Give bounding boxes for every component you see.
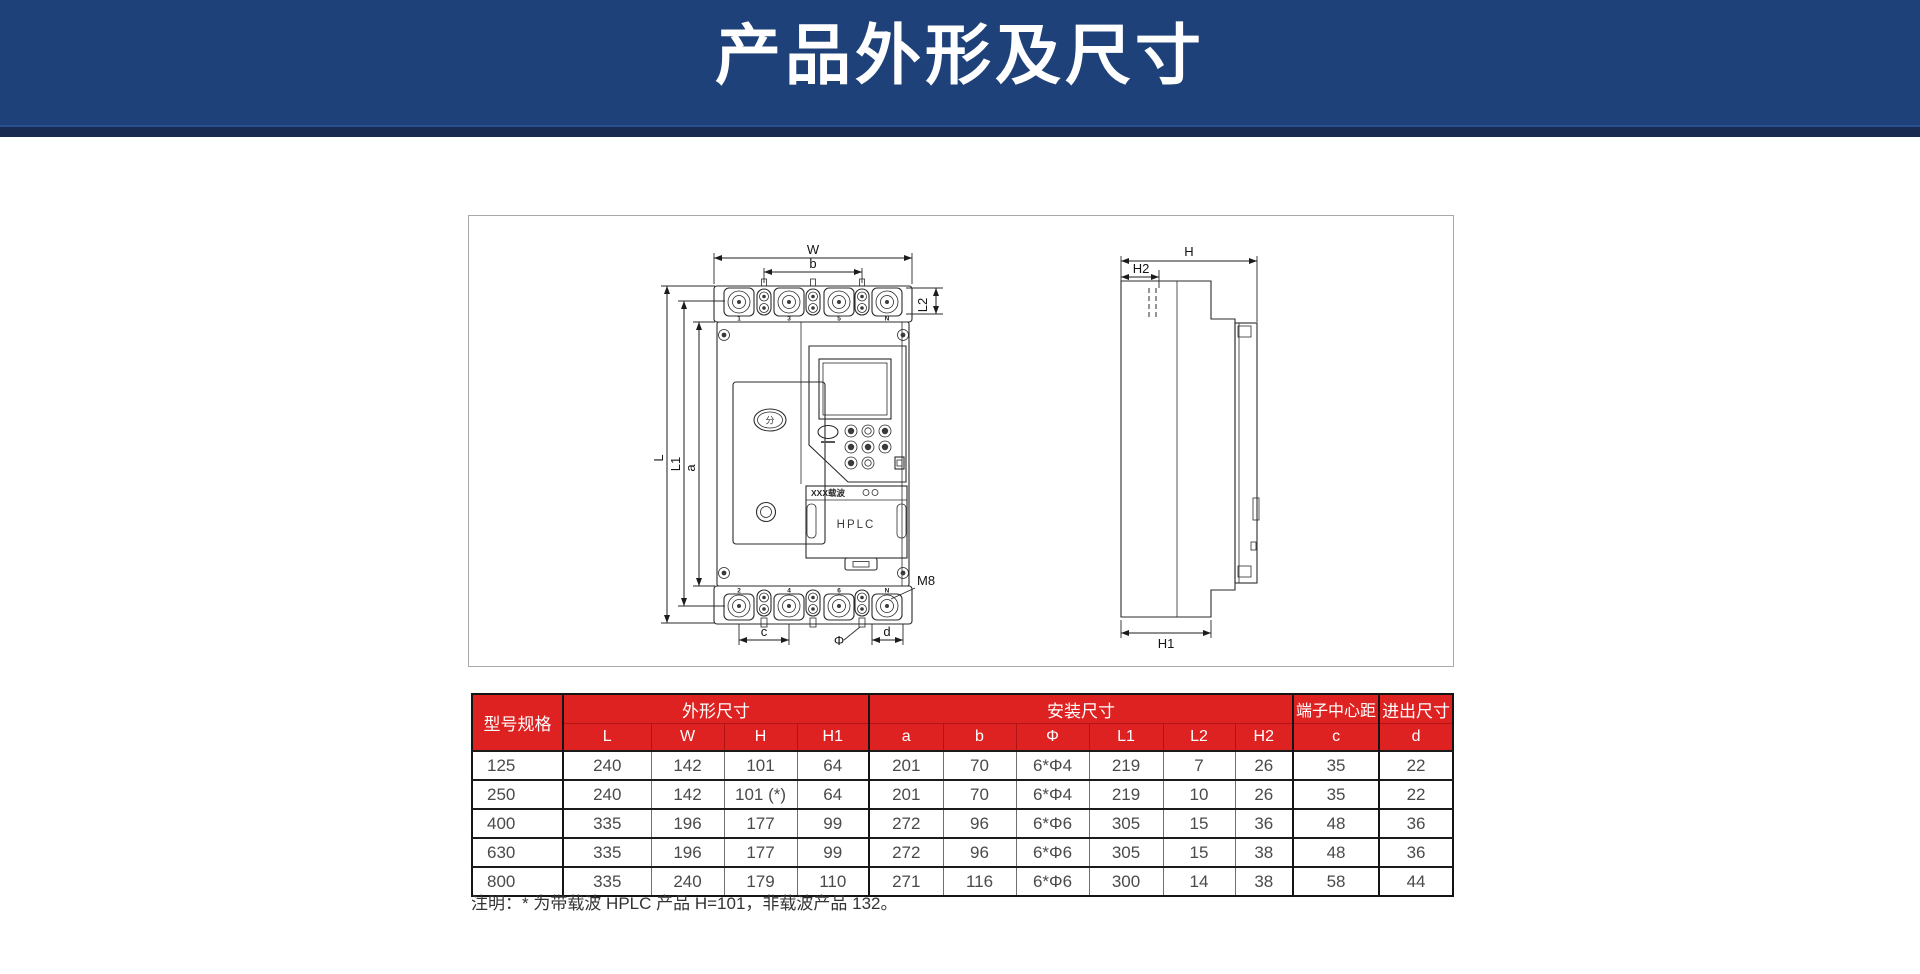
- dim-l: L: [651, 286, 715, 623]
- table-cell: 15: [1163, 838, 1235, 867]
- table-cell: 6*Φ4: [1016, 751, 1089, 780]
- top-terminal-block: 1 3 5 N: [714, 279, 912, 323]
- table-row: 400 335 196 177 99 272 96 6*Φ6 305 15 36…: [472, 809, 1453, 838]
- carrier-label: XXX载波: [811, 488, 846, 498]
- side-body: [1121, 281, 1259, 617]
- thread-label: M8: [917, 573, 935, 588]
- table-cell: 38: [1235, 838, 1293, 867]
- page: 产品外形及尺寸 W b: [0, 0, 1920, 974]
- page-title: 产品外形及尺寸: [0, 0, 1920, 88]
- table-cell: 201: [869, 780, 943, 809]
- table-cell: 44: [1379, 867, 1453, 896]
- screw: [898, 330, 909, 341]
- table-cell: 219: [1089, 780, 1163, 809]
- table-cell: 219: [1089, 751, 1163, 780]
- dimension-diagram-panel: W b 1 3: [468, 215, 1454, 667]
- terminal: N: [872, 288, 902, 323]
- table-cell: 300: [1089, 867, 1163, 896]
- col-header-L2: L2: [1163, 724, 1235, 752]
- screw: [719, 568, 730, 579]
- table-cell: 36: [1235, 809, 1293, 838]
- table-cell: 48: [1293, 809, 1379, 838]
- dimension-table: 型号规格 外形尺寸 安装尺寸 端子中心距 进出尺寸 L W H H1 a b Φ…: [471, 693, 1454, 897]
- table-cell: 177: [724, 838, 797, 867]
- table-cell: 22: [1379, 751, 1453, 780]
- table-cell: 6*Φ6: [1016, 867, 1089, 896]
- table-cell: 240: [563, 751, 651, 780]
- dim-d: d: [872, 624, 903, 645]
- col-header-L: L: [563, 724, 651, 752]
- table-cell: 22: [1379, 780, 1453, 809]
- dim-label-a: a: [683, 464, 698, 472]
- dim-label-l1: L1: [668, 457, 683, 471]
- table-cell: 6*Φ6: [1016, 809, 1089, 838]
- seal-button: [757, 503, 776, 522]
- col-header-outline: 外形尺寸: [563, 694, 869, 724]
- side-view-drawing: H H2: [1089, 242, 1299, 667]
- dim-c: c: [739, 624, 789, 645]
- table-cell: 177: [724, 809, 797, 838]
- display-panel: [809, 346, 906, 482]
- model-cell: 400: [472, 809, 563, 838]
- terminal: 4: [774, 588, 804, 621]
- model-cell: 630: [472, 838, 563, 867]
- col-header-a: a: [869, 724, 943, 752]
- terminal: 3: [774, 288, 804, 323]
- table-cell: 96: [943, 838, 1016, 867]
- table-cell: 99: [797, 838, 869, 867]
- aux-terminal: [806, 279, 820, 315]
- table-cell: 26: [1235, 751, 1293, 780]
- logo-glyph: 分: [765, 416, 774, 426]
- col-header-H: H: [724, 724, 797, 752]
- dim-label-l2: L2: [915, 298, 930, 312]
- terminal-number: 4: [787, 588, 791, 595]
- dim-label-w: W: [807, 242, 820, 257]
- module-clip: [845, 558, 877, 570]
- front-view-drawing: W b 1 3: [629, 242, 979, 667]
- aux-terminal: [806, 590, 820, 627]
- note-text: 注明：* 为带载波 HPLC 产品 H=101，非载波产品 132。: [471, 889, 898, 914]
- dim-label-b: b: [809, 256, 816, 271]
- terminal-number: 2: [737, 588, 741, 595]
- table-cell: 6*Φ6: [1016, 838, 1089, 867]
- table-cell: 36: [1379, 809, 1453, 838]
- col-header-model: 型号规格: [472, 694, 563, 751]
- table-cell: 38: [1235, 867, 1293, 896]
- table-cell: 142: [651, 780, 724, 809]
- terminal-cover-plate: [1235, 323, 1259, 583]
- table-cell: 305: [1089, 838, 1163, 867]
- model-cell: 125: [472, 751, 563, 780]
- table-cell: 35: [1293, 780, 1379, 809]
- table-cell: 142: [651, 751, 724, 780]
- table-cell: 64: [797, 780, 869, 809]
- table-row: 630 335 196 177 99 272 96 6*Φ6 305 15 38…: [472, 838, 1453, 867]
- terminal: 1: [724, 288, 754, 323]
- table-cell: 201: [869, 751, 943, 780]
- header-underline: [0, 125, 1920, 137]
- aux-terminal: [855, 590, 869, 627]
- dim-h: H: [1121, 244, 1257, 322]
- dim-phi: Φ: [834, 627, 860, 648]
- table-cell: 6*Φ4: [1016, 780, 1089, 809]
- table-cell: 116: [943, 867, 1016, 896]
- table-cell: 70: [943, 751, 1016, 780]
- dim-label-c: c: [761, 624, 768, 639]
- table-cell: 35: [1293, 751, 1379, 780]
- dim-h1: H1: [1121, 620, 1211, 651]
- dim-label-d: d: [883, 624, 890, 639]
- module-label: HPLC: [837, 519, 876, 531]
- aux-terminal: [855, 279, 869, 315]
- table-cell: 101 (*): [724, 780, 797, 809]
- table-cell: 26: [1235, 780, 1293, 809]
- meter-body: 分: [717, 322, 909, 586]
- aux-terminal: [757, 590, 771, 627]
- table-cell: 335: [563, 809, 651, 838]
- keypad: [818, 425, 904, 469]
- table-cell: 7: [1163, 751, 1235, 780]
- table-cell: 196: [651, 838, 724, 867]
- table-row: 125 240 142 101 64 201 70 6*Φ4 219 7 26 …: [472, 751, 1453, 780]
- col-header-H2: H2: [1235, 724, 1293, 752]
- table-cell: 15: [1163, 809, 1235, 838]
- dim-h2: H2: [1121, 261, 1159, 288]
- brand-logo: 分: [754, 409, 786, 431]
- table-cell: 48: [1293, 838, 1379, 867]
- terminal: N: [872, 588, 902, 621]
- table-cell: 14: [1163, 867, 1235, 896]
- table-cell: 101: [724, 751, 797, 780]
- table-cell: 96: [943, 809, 1016, 838]
- table-cell: 36: [1379, 838, 1453, 867]
- col-header-inout: 进出尺寸: [1379, 694, 1453, 724]
- col-header-L1: L1: [1089, 724, 1163, 752]
- table-cell: 335: [563, 838, 651, 867]
- dim-label-h1: H1: [1158, 636, 1175, 651]
- table-cell: 240: [563, 780, 651, 809]
- aux-terminal: [757, 279, 771, 315]
- left-cover: 分: [733, 382, 825, 544]
- table-cell: 196: [651, 809, 724, 838]
- page-header: 产品外形及尺寸: [0, 0, 1920, 137]
- col-header-H1: H1: [797, 724, 869, 752]
- screw: [898, 568, 909, 579]
- table-cell: 272: [869, 809, 943, 838]
- screw: [719, 330, 730, 341]
- table-cell: 272: [869, 838, 943, 867]
- hplc-module: XXX载波 HPLC: [806, 486, 907, 570]
- dim-label-h2: H2: [1133, 261, 1150, 276]
- table-cell: 58: [1293, 867, 1379, 896]
- col-header-d: d: [1379, 724, 1453, 752]
- bottom-terminal-block: 2 4 6 N: [714, 586, 912, 627]
- table-cell: 99: [797, 809, 869, 838]
- dim-a: a: [683, 322, 715, 586]
- terminal: 5: [824, 288, 854, 323]
- col-header-terminal-pitch: 端子中心距: [1293, 694, 1379, 724]
- lcd-screen: [819, 359, 891, 419]
- terminal-number: 6: [837, 588, 841, 595]
- dim-label-h: H: [1184, 244, 1193, 259]
- button-shaft-hidden-lines: [1149, 288, 1156, 320]
- terminal-number: N: [885, 588, 890, 595]
- dim-label-l: L: [651, 454, 666, 461]
- col-header-b: b: [943, 724, 1016, 752]
- table-subheader-row: L W H H1 a b Φ L1 L2 H2 c d: [472, 724, 1453, 752]
- table-row: 250 240 142 101 (*) 64 201 70 6*Φ4 219 1…: [472, 780, 1453, 809]
- table-cell: 64: [797, 751, 869, 780]
- dim-label-phi: Φ: [834, 633, 844, 648]
- model-cell: 250: [472, 780, 563, 809]
- col-header-c: c: [1293, 724, 1379, 752]
- table-header-row: 型号规格 外形尺寸 安装尺寸 端子中心距 进出尺寸: [472, 694, 1453, 724]
- terminal: 2: [724, 588, 754, 621]
- table-cell: 70: [943, 780, 1016, 809]
- table-cell: 10: [1163, 780, 1235, 809]
- table-cell: 305: [1089, 809, 1163, 838]
- col-header-phi: Φ: [1016, 724, 1089, 752]
- col-header-mounting: 安装尺寸: [869, 694, 1293, 724]
- col-header-W: W: [651, 724, 724, 752]
- terminal: 6: [824, 588, 854, 621]
